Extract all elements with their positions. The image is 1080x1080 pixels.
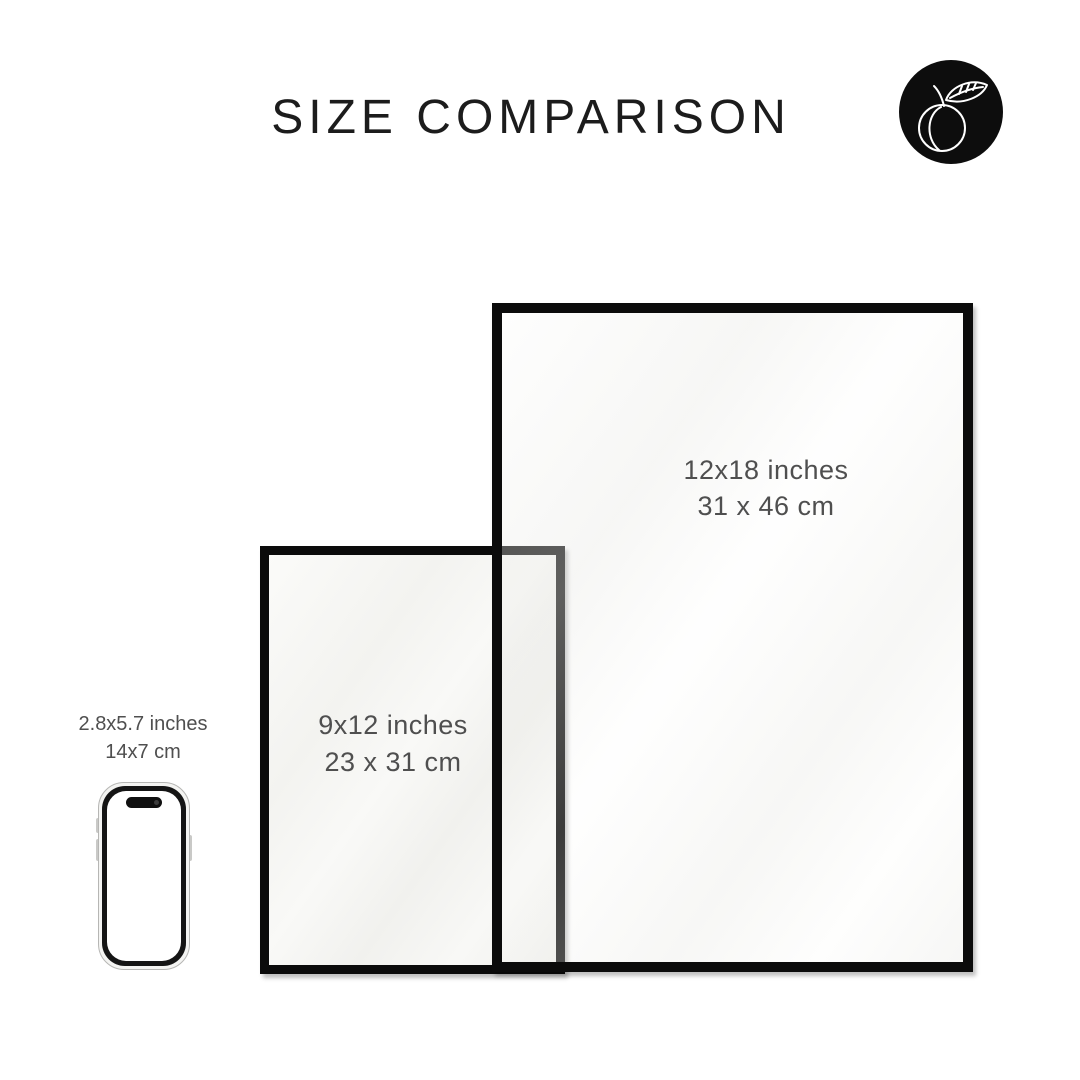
large-frame-size-inches: 12x18 inches <box>683 452 848 488</box>
dynamic-island <box>126 797 162 808</box>
phone-size-label: 2.8x5.7 inches 14x7 cm <box>79 710 208 766</box>
phone-screen <box>107 791 181 961</box>
large-frame-size-cm: 31 x 46 cm <box>683 488 848 524</box>
phone-body <box>98 782 190 970</box>
phone-bezel <box>102 786 186 966</box>
phone-size-cm: 14x7 cm <box>79 738 208 766</box>
phone-illustration <box>98 782 190 970</box>
brand-logo <box>899 60 1003 164</box>
camera-lens-icon <box>154 800 159 805</box>
peach-icon <box>899 60 1003 164</box>
size-comparison-infographic: SIZE COMPARISON 12x18 inches 31 x 46 cm … <box>0 0 1080 1080</box>
large-frame <box>492 303 973 972</box>
small-frame-size-cm: 23 x 31 cm <box>318 744 468 781</box>
small-frame-size-inches: 9x12 inches <box>318 707 468 744</box>
page-title: SIZE COMPARISON <box>271 90 791 145</box>
large-frame-size-label: 12x18 inches 31 x 46 cm <box>683 452 848 524</box>
small-frame-size-label: 9x12 inches 23 x 31 cm <box>318 707 468 781</box>
phone-size-inches: 2.8x5.7 inches <box>79 710 208 738</box>
